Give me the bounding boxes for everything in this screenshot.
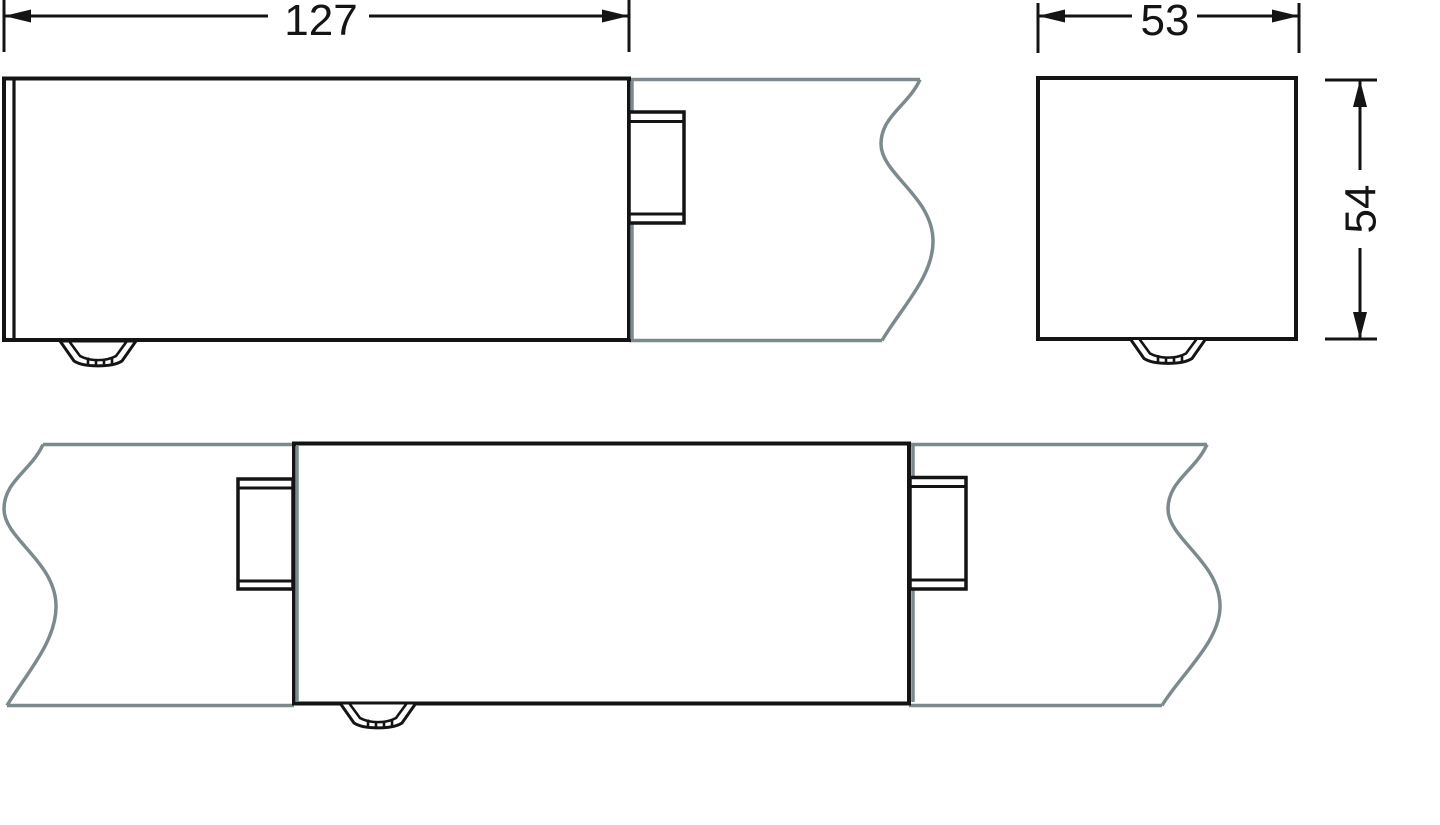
front-view	[1038, 78, 1296, 364]
break-line-wave-left	[4, 445, 56, 706]
break-line-wave	[881, 80, 933, 341]
arrowhead-left	[1038, 10, 1065, 23]
dimension-length-127: 127	[4, 0, 629, 52]
dimension-width-label: 53	[1141, 0, 1190, 45]
arrowhead-bottom	[1353, 312, 1367, 339]
cover-body	[294, 444, 909, 704]
arrowhead-left	[4, 10, 31, 23]
dimension-length-label: 127	[284, 0, 357, 45]
side-view	[4, 79, 933, 367]
dimension-width-53: 53	[1038, 0, 1299, 53]
arrowhead-top	[1353, 80, 1367, 107]
installed-view	[4, 444, 1220, 729]
break-line-wave-right	[1162, 445, 1220, 706]
grip-tab	[340, 703, 416, 729]
end-cap-face	[1038, 78, 1296, 339]
arrowhead-right	[602, 10, 629, 23]
technical-drawing-page: 127 53 54	[0, 0, 1440, 825]
drawing-canvas: 127 53 54	[0, 0, 1440, 825]
retaining-clip-right	[910, 478, 966, 590]
grip-tab	[1130, 339, 1206, 365]
arrowhead-right	[1272, 10, 1299, 23]
retaining-clip	[629, 112, 684, 223]
dimension-height-label: 54	[1337, 185, 1386, 234]
retaining-clip-left	[238, 479, 293, 589]
grip-tab	[60, 341, 136, 367]
dimension-height-54: 54	[1325, 80, 1386, 339]
end-cap-body	[4, 79, 629, 341]
